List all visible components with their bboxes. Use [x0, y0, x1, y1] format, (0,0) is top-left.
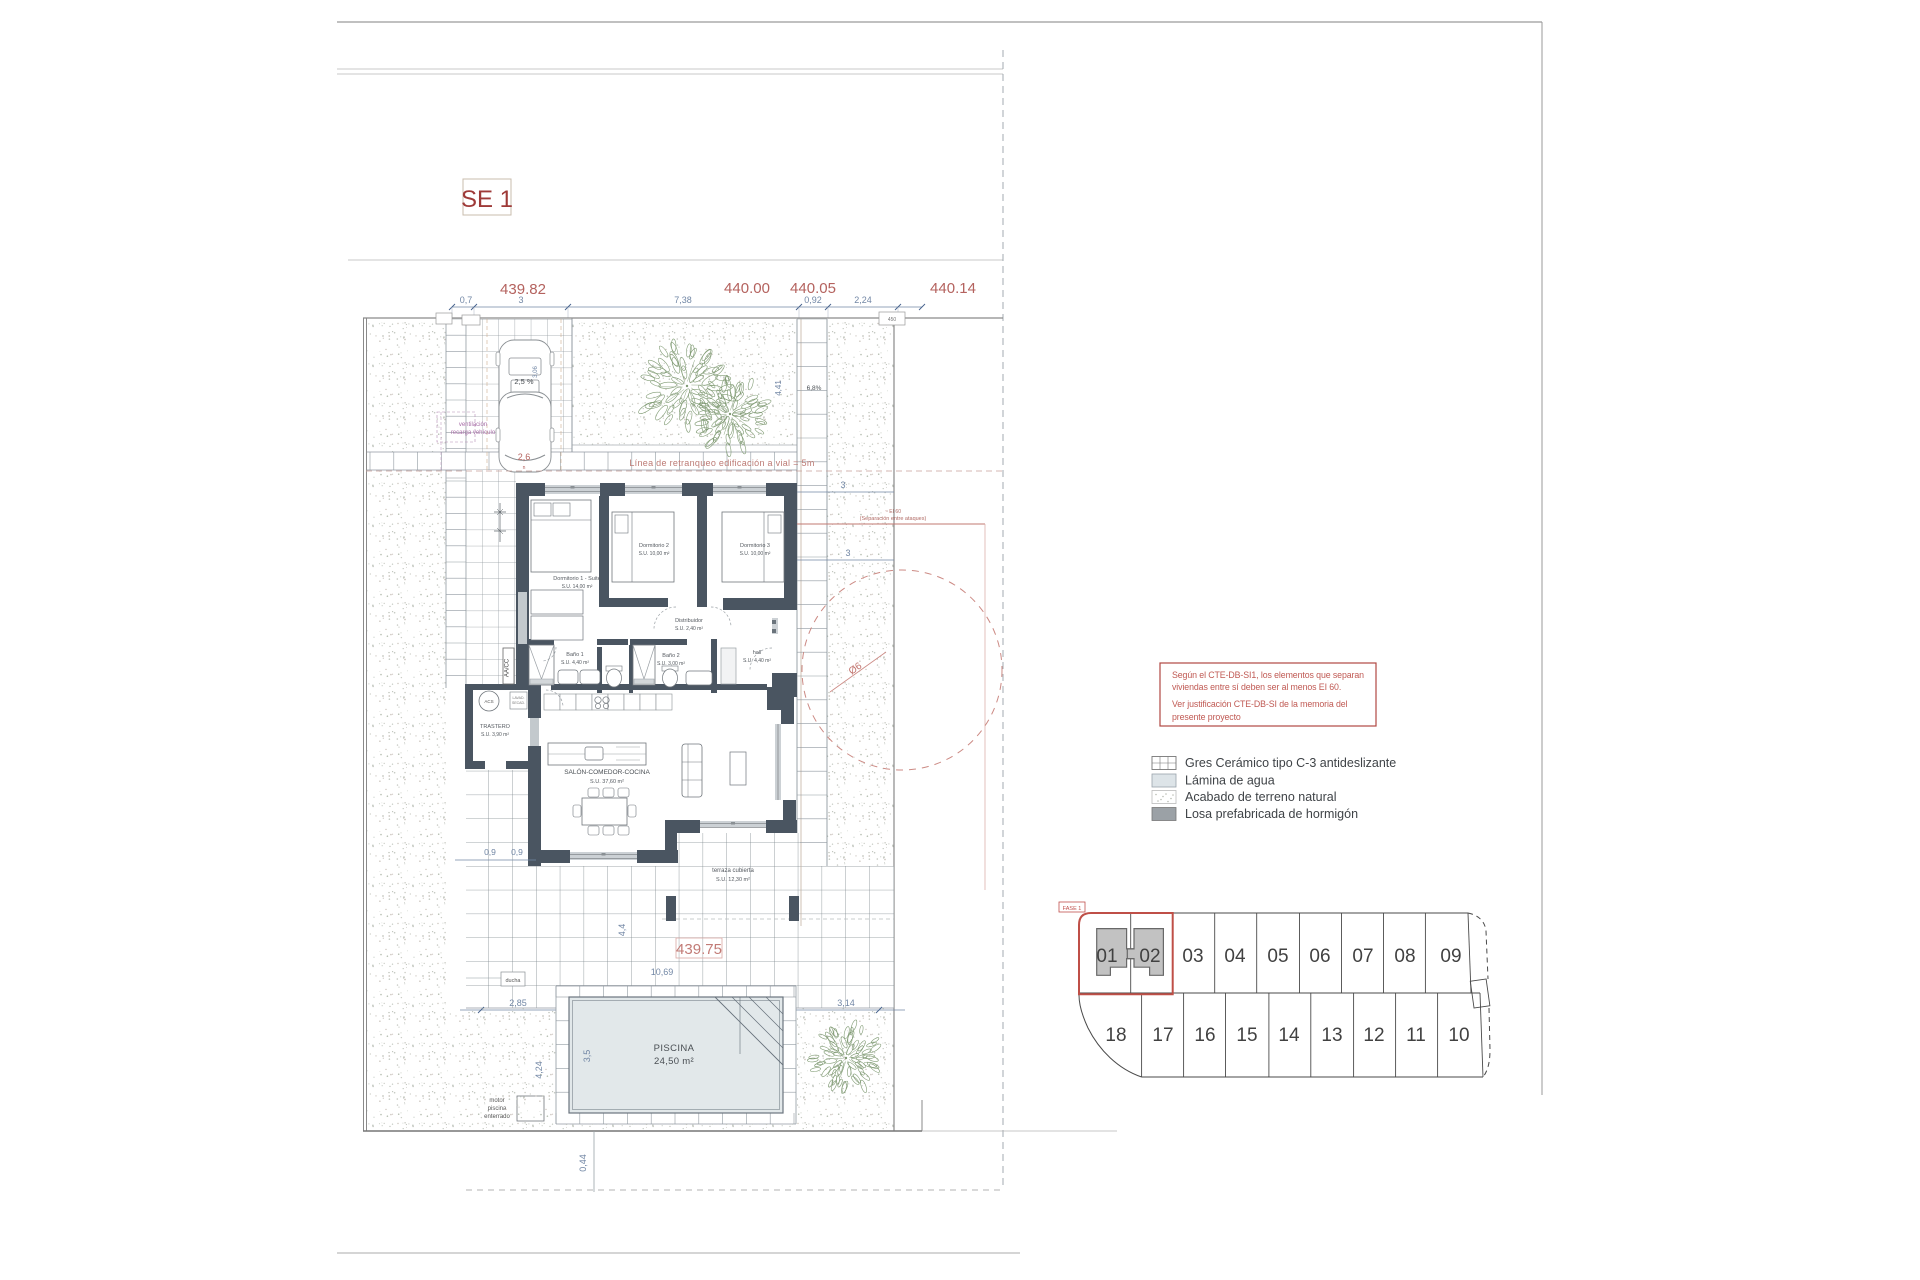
svg-text:440.00: 440.00	[724, 280, 770, 297]
svg-text:Según el CTE-DB-SI1, los eleme: Según el CTE-DB-SI1, los elementos que s…	[1172, 670, 1364, 680]
svg-text:13: 13	[1321, 1025, 1342, 1046]
svg-text:05: 05	[1267, 946, 1288, 967]
svg-text:S.U. 12,30 m²: S.U. 12,30 m²	[716, 877, 750, 883]
svg-text:17: 17	[1152, 1025, 1173, 1046]
svg-text:LAVAD.: LAVAD.	[513, 696, 525, 700]
svg-text:4,4: 4,4	[617, 924, 627, 937]
svg-text:03: 03	[1182, 946, 1203, 967]
svg-text:3: 3	[845, 548, 850, 558]
svg-text:2,85: 2,85	[509, 998, 527, 1008]
svg-text:439.75: 439.75	[676, 941, 722, 958]
svg-text:Dormitorio 1 - Suite: Dormitorio 1 - Suite	[553, 576, 600, 582]
svg-text:(Separación entre ataques): (Separación entre ataques)	[860, 516, 927, 522]
svg-text:02: 02	[1139, 946, 1160, 967]
svg-text:recarga vehículo: recarga vehículo	[451, 430, 496, 436]
svg-text:10,69: 10,69	[651, 967, 674, 977]
svg-text:2,5 %: 2,5 %	[514, 377, 534, 386]
svg-text:06: 06	[1309, 946, 1330, 967]
svg-text:09: 09	[1440, 946, 1461, 967]
svg-text:0,9: 0,9	[511, 847, 523, 857]
svg-text:14: 14	[1278, 1025, 1300, 1046]
svg-text:450: 450	[888, 317, 897, 323]
svg-text:S.U. 14,00 m²: S.U. 14,00 m²	[562, 584, 593, 590]
svg-text:2,24: 2,24	[854, 295, 872, 305]
svg-text:Dormitorio 3: Dormitorio 3	[740, 543, 770, 549]
svg-text:S.U. 3,90 m²: S.U. 3,90 m²	[481, 732, 509, 738]
svg-text:439.82: 439.82	[500, 281, 546, 298]
svg-text:0,7: 0,7	[460, 295, 473, 305]
svg-text:Dormitorio 2: Dormitorio 2	[639, 543, 669, 549]
svg-text:AA/CC: AA/CC	[505, 658, 511, 677]
svg-text:SECAD.: SECAD.	[512, 701, 525, 705]
svg-text:4,41: 4,41	[774, 380, 783, 396]
svg-text:Baño 2: Baño 2	[662, 653, 679, 659]
svg-text:viviendas entre sí deben ser a: viviendas entre sí deben ser al menos EI…	[1172, 682, 1341, 692]
svg-text:08: 08	[1394, 946, 1415, 967]
svg-text:Distribuidor: Distribuidor	[675, 618, 703, 624]
svg-text:ducha: ducha	[506, 978, 522, 984]
svg-text:Gres Cerámico tipo C-3 antides: Gres Cerámico tipo C-3 antideslizante	[1185, 756, 1396, 770]
svg-text:04: 04	[1224, 946, 1246, 967]
svg-text:n: n	[523, 465, 526, 471]
svg-text:ACS: ACS	[484, 699, 493, 704]
svg-text:15: 15	[1236, 1025, 1257, 1046]
svg-text:S.U. 2,40 m²: S.U. 2,40 m²	[675, 626, 703, 632]
svg-text:PISCINA: PISCINA	[654, 1043, 695, 1054]
svg-text:Acabado de terreno natural: Acabado de terreno natural	[1185, 790, 1337, 804]
svg-text:Línea de retranqueo edificació: Línea de retranqueo edificación a vial =…	[629, 458, 814, 468]
svg-text:0,44: 0,44	[578, 1154, 588, 1172]
svg-text:12: 12	[1363, 1025, 1384, 1046]
svg-text:11: 11	[1406, 1025, 1426, 1046]
svg-text:presente proyecto: presente proyecto	[1172, 712, 1241, 722]
svg-text:FASE 1: FASE 1	[1063, 906, 1082, 912]
svg-text:7,38: 7,38	[674, 295, 692, 305]
svg-text:Ver justificación CTE-DB-SI de: Ver justificación CTE-DB-SI de la memori…	[1172, 699, 1348, 709]
svg-text:ventilación: ventilación	[459, 422, 487, 428]
svg-text:Losa prefabricada de hormigón: Losa prefabricada de hormigón	[1185, 807, 1358, 821]
svg-text:3: 3	[840, 480, 845, 490]
svg-text:10: 10	[1448, 1025, 1469, 1046]
svg-text:SALÓN-COMEDOR-COCINA: SALÓN-COMEDOR-COCINA	[564, 767, 650, 776]
svg-text:440.14: 440.14	[930, 280, 976, 297]
svg-text:2,6: 2,6	[518, 452, 531, 462]
svg-text:01: 01	[1096, 946, 1117, 967]
svg-text:TRASTERO: TRASTERO	[480, 724, 511, 730]
svg-text:3,5: 3,5	[582, 1050, 592, 1063]
svg-text:6,8%: 6,8%	[807, 385, 822, 392]
svg-text:16: 16	[1194, 1025, 1215, 1046]
svg-text:S.U. 3,00 m²: S.U. 3,00 m²	[657, 661, 685, 667]
svg-text:0,9: 0,9	[484, 847, 496, 857]
svg-text:~ EI 60: ~ EI 60	[885, 509, 901, 515]
svg-text:terraza cubierta: terraza cubierta	[712, 868, 754, 874]
svg-text:440.05: 440.05	[790, 280, 836, 297]
svg-text:S.U. 10,00 m²: S.U. 10,00 m²	[639, 551, 670, 557]
svg-text:S.U. 37,60 m²: S.U. 37,60 m²	[590, 779, 624, 785]
svg-text:24,50 m²: 24,50 m²	[654, 1056, 694, 1067]
svg-text:S.U. 10,00 m²: S.U. 10,00 m²	[740, 551, 771, 557]
svg-text:3,06: 3,06	[533, 366, 539, 378]
svg-text:18: 18	[1105, 1025, 1126, 1046]
svg-text:3,14: 3,14	[837, 998, 855, 1008]
svg-text:S.U. 4,40 m²: S.U. 4,40 m²	[743, 658, 771, 664]
svg-text:07: 07	[1352, 946, 1373, 967]
svg-text:SE 1: SE 1	[461, 186, 513, 213]
svg-text:hall: hall	[753, 650, 762, 656]
svg-text:Lámina de agua: Lámina de agua	[1185, 774, 1275, 788]
svg-text:S.U. 4,40 m²: S.U. 4,40 m²	[561, 660, 589, 666]
svg-text:Baño 1: Baño 1	[566, 652, 583, 658]
